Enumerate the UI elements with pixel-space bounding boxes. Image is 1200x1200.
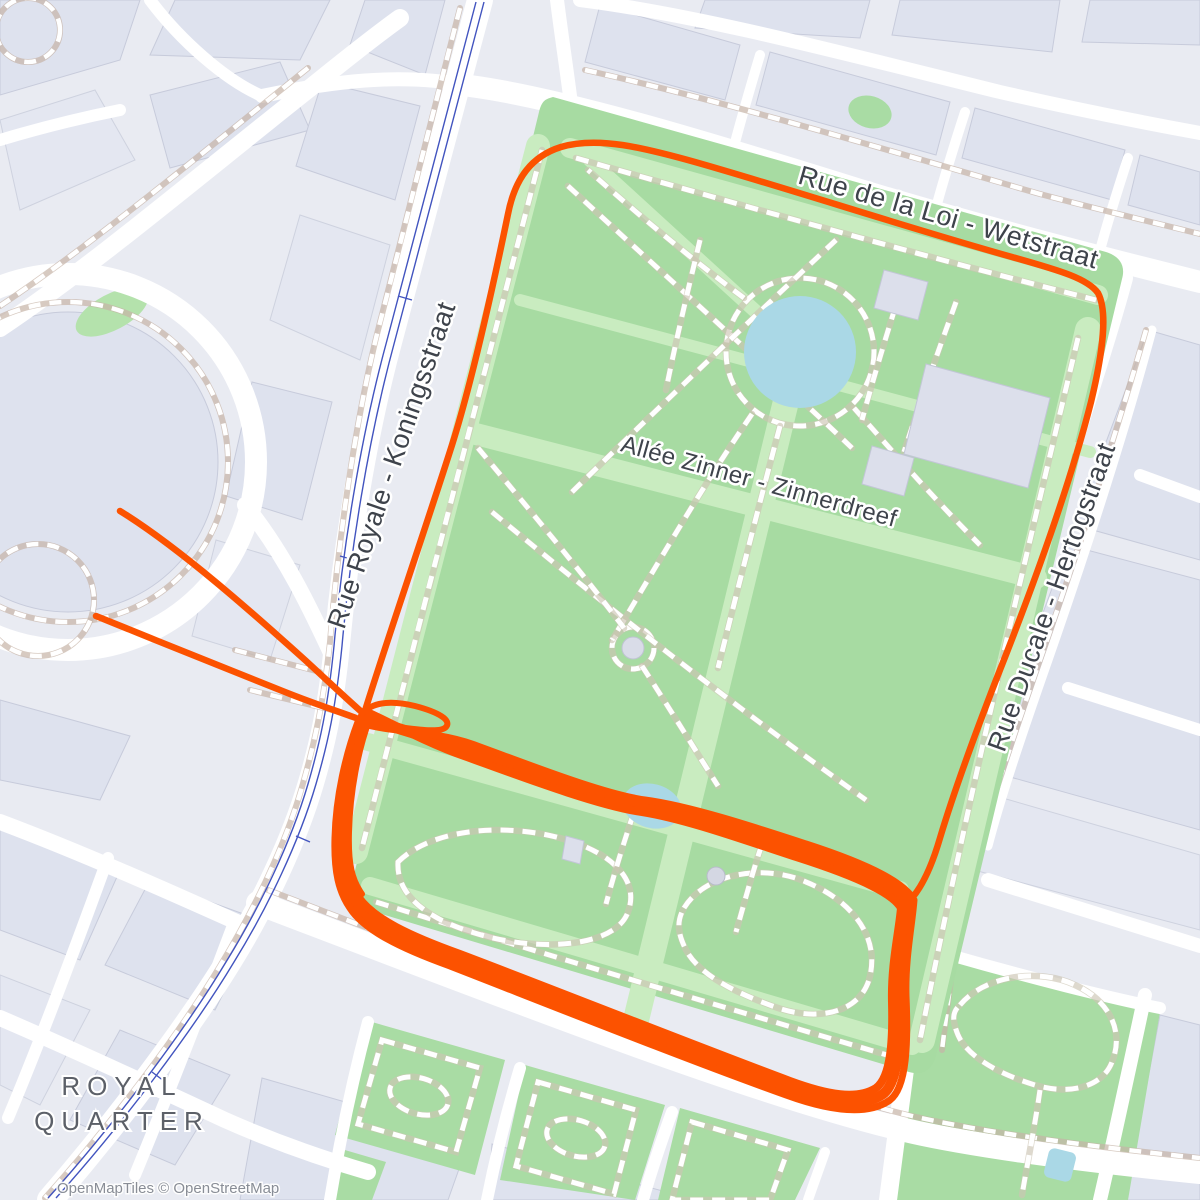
map-canvas[interactable]: Rue de la Loi - Wetstraat Rue Royale - K… [0,0,1200,1200]
district-label-line2: QUARTER [34,1106,210,1136]
statue [562,836,584,864]
map-attribution: OpenMapTiles © OpenStreetMap [57,1180,279,1197]
district-label-line1: ROYAL [61,1071,182,1101]
round-basin [744,296,856,408]
building [1082,0,1200,45]
fountain [622,637,644,659]
kiosk [707,867,725,885]
